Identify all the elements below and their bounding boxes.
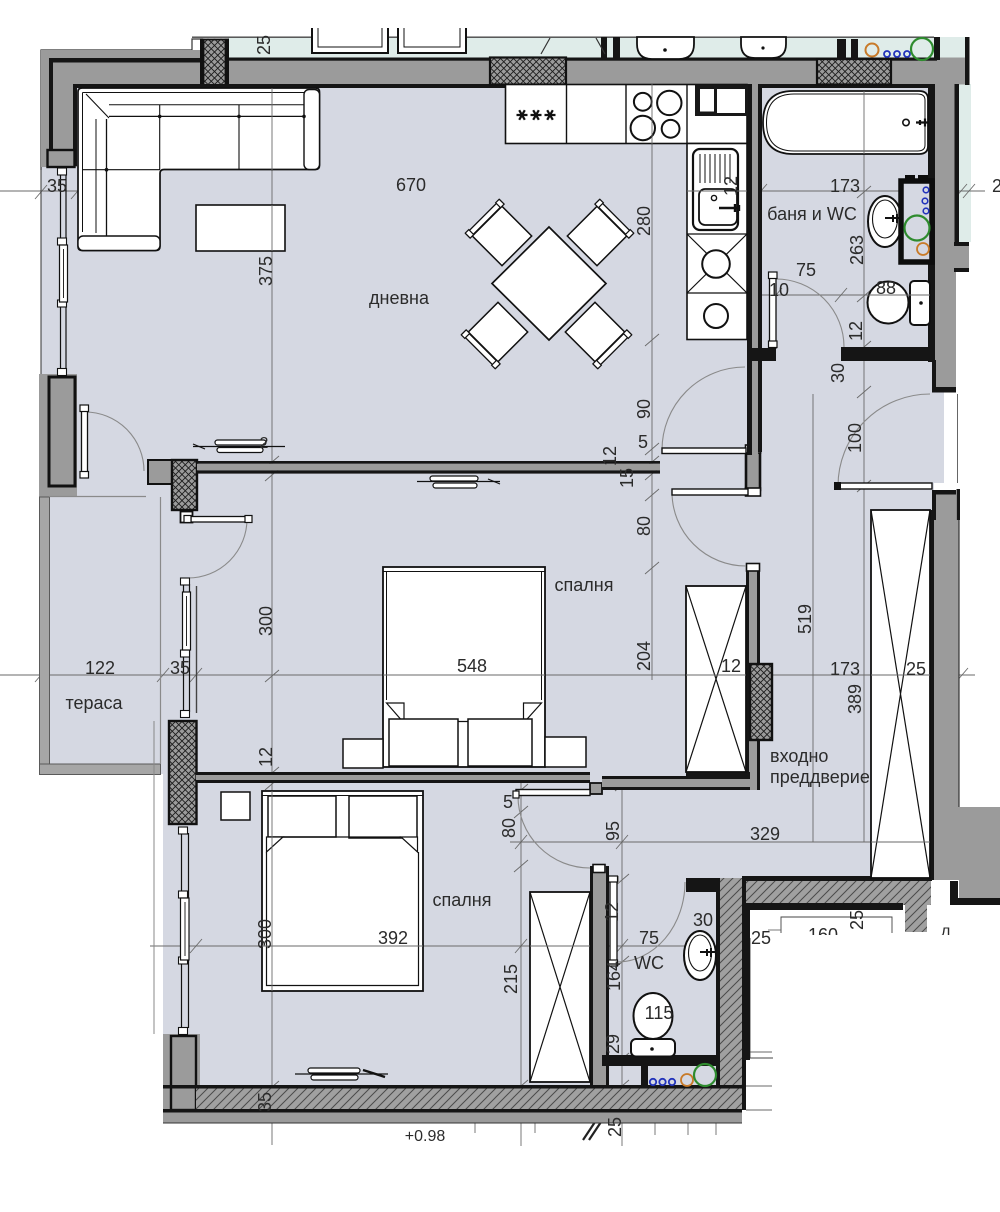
svg-text:75: 75 xyxy=(796,260,816,280)
svg-text:25: 25 xyxy=(751,928,771,948)
svg-text:80: 80 xyxy=(634,516,654,536)
svg-text:5: 5 xyxy=(503,792,513,812)
svg-text:204: 204 xyxy=(634,641,654,671)
svg-text:300: 300 xyxy=(256,606,276,636)
svg-text:90: 90 xyxy=(634,399,654,419)
svg-text:12: 12 xyxy=(256,747,276,767)
svg-text:263: 263 xyxy=(847,235,867,265)
svg-text:спалня: спалня xyxy=(555,575,614,595)
svg-text:375: 375 xyxy=(256,256,276,286)
svg-text:35: 35 xyxy=(255,1092,275,1112)
svg-text:35: 35 xyxy=(47,176,67,196)
svg-text:95: 95 xyxy=(603,821,623,841)
svg-text:300: 300 xyxy=(255,919,275,949)
svg-text:519: 519 xyxy=(795,604,815,634)
svg-text:25: 25 xyxy=(992,176,1000,196)
svg-text:164: 164 xyxy=(604,961,624,991)
svg-text:25: 25 xyxy=(906,659,926,679)
svg-text:30: 30 xyxy=(828,363,848,383)
svg-text:12: 12 xyxy=(846,321,866,341)
svg-text:12: 12 xyxy=(602,902,622,922)
svg-text:75: 75 xyxy=(639,928,659,948)
svg-text:12: 12 xyxy=(721,176,741,196)
svg-text:392: 392 xyxy=(378,928,408,948)
svg-text:30: 30 xyxy=(693,910,713,930)
svg-text:5: 5 xyxy=(638,432,648,452)
svg-text:670: 670 xyxy=(396,175,426,195)
svg-text:115: 115 xyxy=(645,1003,674,1023)
svg-text:122: 122 xyxy=(85,658,115,678)
svg-text:2: 2 xyxy=(260,435,269,452)
svg-text:преддверие: преддверие xyxy=(770,767,870,787)
svg-text:+0.98: +0.98 xyxy=(405,1128,446,1145)
svg-text:280: 280 xyxy=(634,206,654,236)
svg-text:100: 100 xyxy=(845,423,865,453)
svg-text:173: 173 xyxy=(830,659,860,679)
svg-text:входно: входно xyxy=(770,746,828,766)
svg-text:215: 215 xyxy=(501,964,521,994)
svg-text:35: 35 xyxy=(170,658,190,678)
svg-text:15: 15 xyxy=(617,468,637,488)
svg-text:25: 25 xyxy=(254,35,274,55)
svg-text:10: 10 xyxy=(769,280,789,300)
svg-text:329: 329 xyxy=(750,824,780,844)
svg-text:WC: WC xyxy=(634,953,664,973)
svg-text:спалня: спалня xyxy=(433,890,492,910)
svg-text:29: 29 xyxy=(603,1034,623,1054)
svg-text:25: 25 xyxy=(605,1117,625,1137)
svg-text:тераса: тераса xyxy=(65,693,123,713)
svg-text:12: 12 xyxy=(600,446,620,466)
svg-text:173: 173 xyxy=(830,176,860,196)
svg-text:дневна: дневна xyxy=(369,288,430,308)
svg-text:25: 25 xyxy=(847,910,867,930)
svg-text:548: 548 xyxy=(457,656,487,676)
svg-text:80: 80 xyxy=(499,818,519,838)
svg-text:12: 12 xyxy=(721,656,741,676)
svg-text:88: 88 xyxy=(876,278,896,298)
svg-text:389: 389 xyxy=(845,684,865,714)
svg-text:баня и WC: баня и WC xyxy=(767,204,857,224)
